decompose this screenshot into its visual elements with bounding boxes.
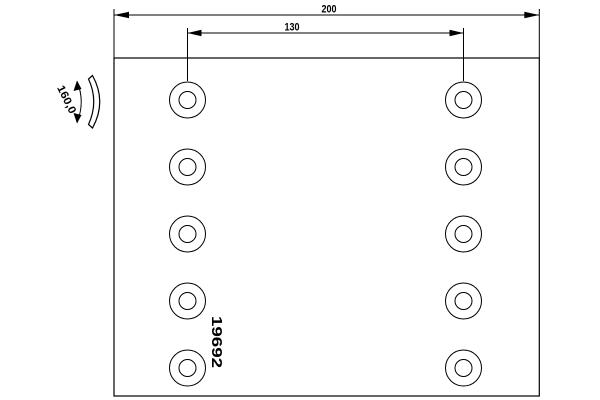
rivet-hole xyxy=(170,216,206,252)
dimension-overall-length: 200 xyxy=(114,4,539,59)
part-number-label: 19692 xyxy=(208,316,225,368)
rivet-hole xyxy=(170,149,206,185)
dim-overall-length-label: 200 xyxy=(322,4,337,16)
rivet-hole xyxy=(446,350,482,386)
arrowhead-top xyxy=(74,81,82,92)
rivet-hole xyxy=(170,350,206,386)
arrowhead-bottom xyxy=(74,113,82,124)
lining-cross-section: 160,0 xyxy=(54,76,100,129)
arrowhead-left xyxy=(114,12,129,18)
rivet-hole xyxy=(446,283,482,319)
rivet-hole xyxy=(170,82,206,118)
dim-hole-spacing-label: 130 xyxy=(285,22,300,34)
brake-lining-drawing-canvas: 200 130 160,0 xyxy=(0,0,600,400)
rivet-hole xyxy=(170,283,206,319)
curved-section-profile xyxy=(89,76,100,129)
arrowhead-right xyxy=(450,30,464,36)
arrowhead-right xyxy=(524,12,539,18)
technical-drawing-page: 200 130 160,0 xyxy=(0,0,600,400)
arrowhead-left xyxy=(188,30,202,36)
rivet-hole xyxy=(446,82,482,118)
rivet-hole xyxy=(446,149,482,185)
rivet-hole xyxy=(446,216,482,252)
